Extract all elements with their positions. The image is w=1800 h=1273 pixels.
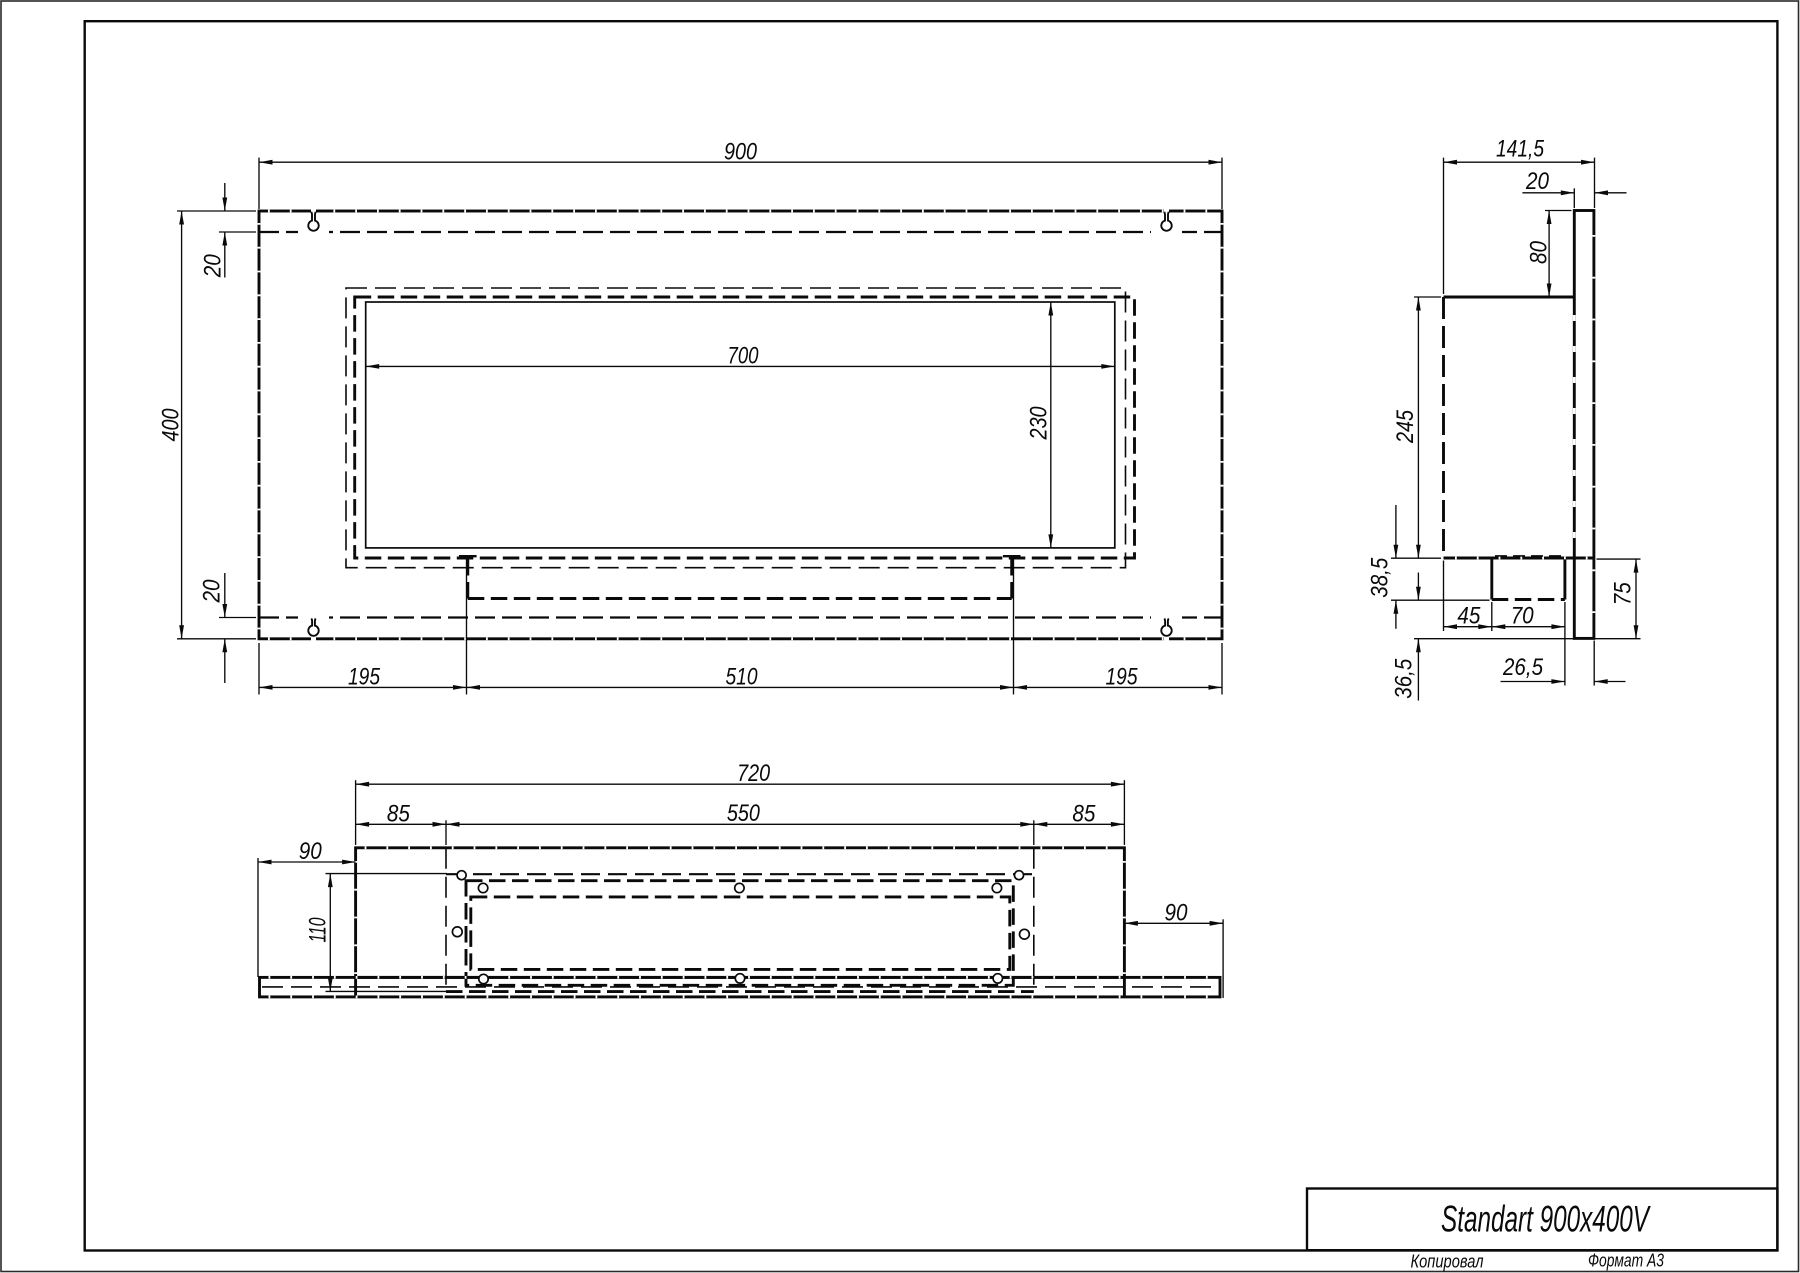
svg-text:141,5: 141,5 (1496, 136, 1544, 163)
svg-text:Формат А3: Формат А3 (1588, 1251, 1664, 1271)
svg-text:45: 45 (1457, 603, 1480, 630)
svg-text:230: 230 (1026, 406, 1053, 440)
svg-text:90: 90 (1165, 899, 1188, 926)
svg-text:Копировал: Копировал (1411, 1252, 1484, 1272)
svg-text:36,5: 36,5 (1391, 658, 1418, 698)
svg-text:Standart 900x400V: Standart 900x400V (1441, 1198, 1651, 1239)
svg-text:75: 75 (1610, 582, 1637, 605)
svg-text:550: 550 (727, 800, 760, 827)
svg-text:80: 80 (1526, 241, 1553, 264)
svg-text:20: 20 (200, 254, 227, 278)
svg-text:400: 400 (158, 408, 185, 441)
svg-text:110: 110 (305, 917, 332, 942)
svg-text:510: 510 (726, 664, 758, 691)
svg-text:20: 20 (199, 579, 226, 603)
svg-text:700: 700 (728, 343, 759, 370)
svg-text:900: 900 (724, 139, 757, 166)
svg-text:720: 720 (737, 760, 770, 787)
svg-text:26,5: 26,5 (1502, 654, 1543, 681)
svg-text:245: 245 (1392, 410, 1419, 444)
svg-text:90: 90 (299, 838, 322, 865)
svg-text:20: 20 (1525, 168, 1549, 195)
svg-text:70: 70 (1511, 603, 1534, 630)
svg-text:38,5: 38,5 (1367, 557, 1394, 597)
svg-text:85: 85 (1072, 801, 1095, 828)
svg-text:195: 195 (348, 664, 380, 691)
svg-text:195: 195 (1106, 664, 1138, 691)
svg-text:85: 85 (387, 801, 410, 828)
